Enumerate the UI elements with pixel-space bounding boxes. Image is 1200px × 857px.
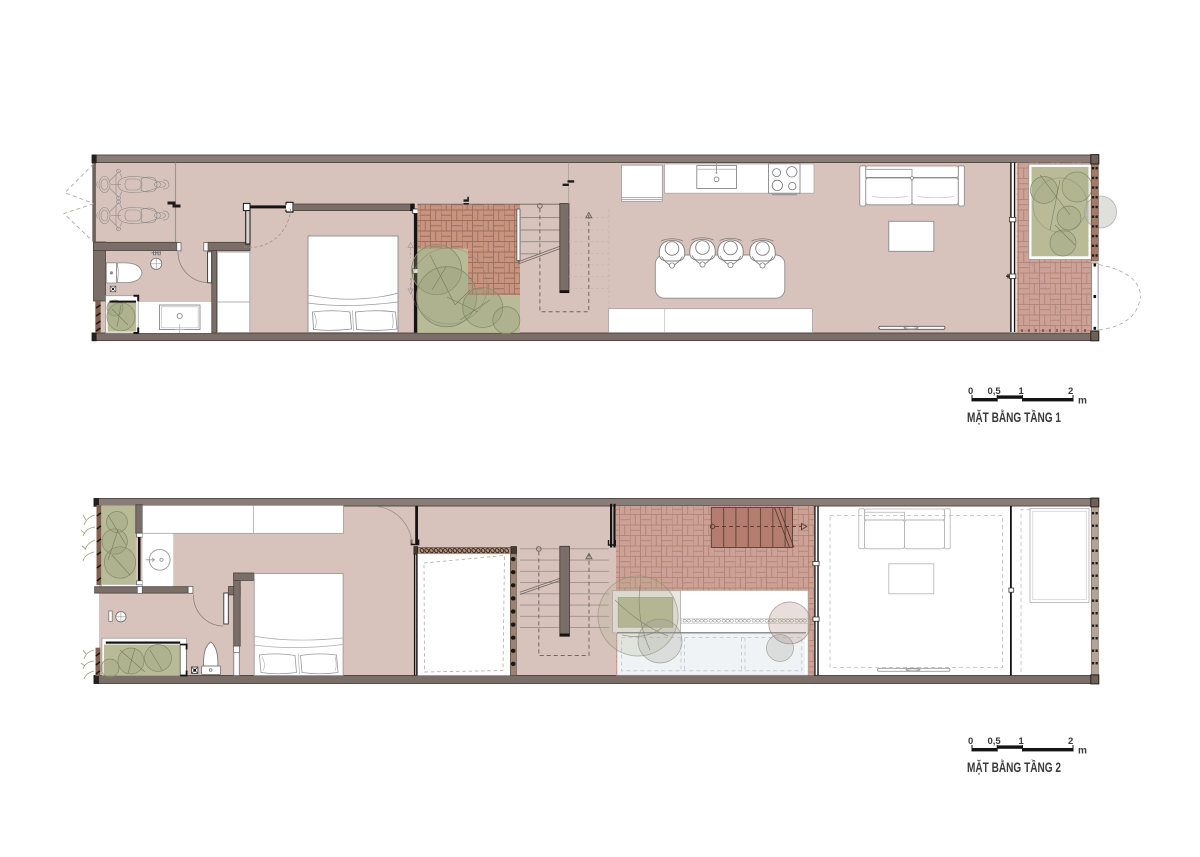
svg-text:MẶT BẰNG TẦNG 2: MẶT BẰNG TẦNG 2 [967,758,1061,775]
svg-text:0,5: 0,5 [988,386,1002,397]
svg-text:MẶT BẰNG TẦNG 1: MẶT BẰNG TẦNG 1 [967,408,1061,425]
svg-text:0,5: 0,5 [988,736,1002,747]
svg-text:0: 0 [968,386,973,397]
svg-text:1: 1 [1019,736,1025,747]
svg-text:m: m [1078,396,1087,407]
svg-text:1: 1 [1019,386,1025,397]
svg-text:m: m [1078,746,1087,757]
svg-text:0: 0 [968,736,973,747]
